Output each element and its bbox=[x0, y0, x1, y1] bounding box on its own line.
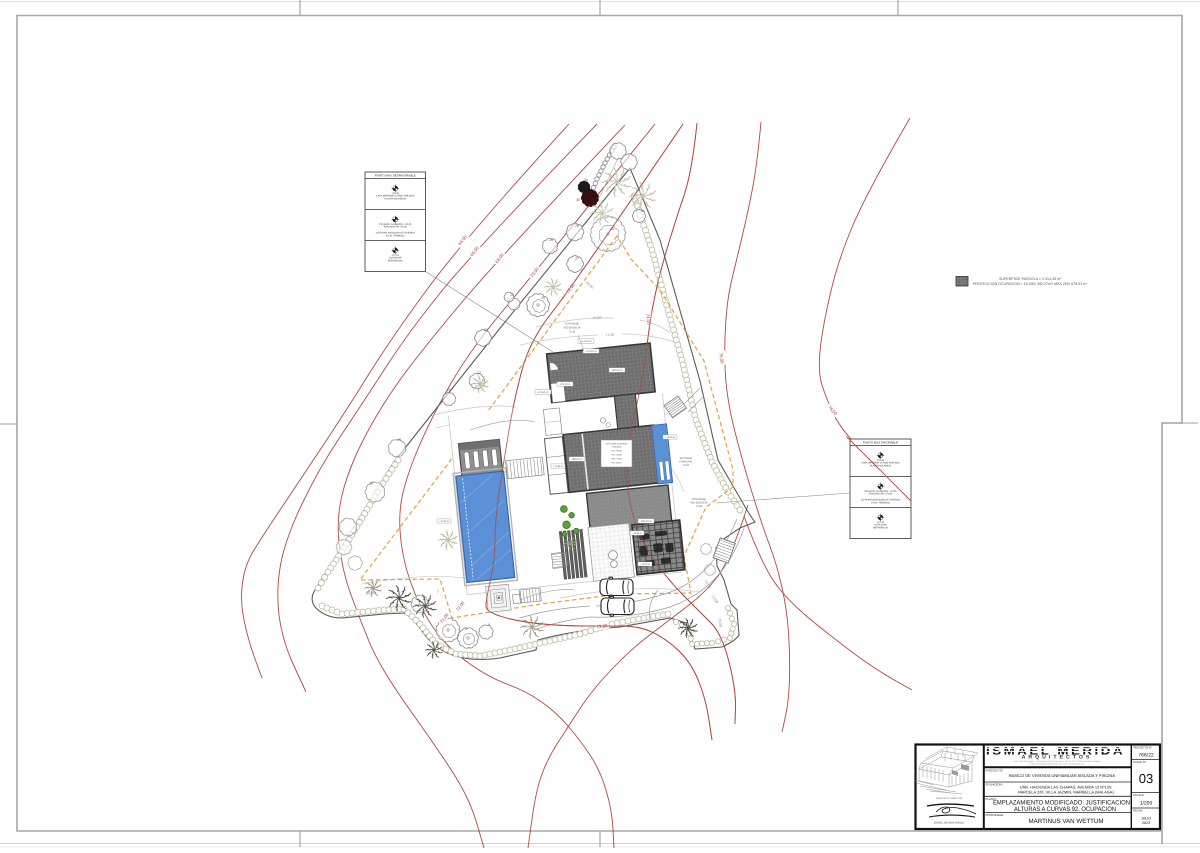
svg-text:ARQUITECTO DIRECTOR: ARQUITECTO DIRECTOR bbox=[936, 797, 963, 800]
svg-text:+80,00 m: +80,00 m bbox=[572, 458, 583, 461]
svg-text:SITUACION:: SITUACION: bbox=[986, 783, 1003, 787]
svg-text:ARQUITECTOS: ARQUITECTOS bbox=[1022, 755, 1093, 761]
svg-text:ESCALA:: ESCALA: bbox=[1133, 794, 1145, 797]
svg-text:CARA INFERIOR ULTIMO FORJADO: CARA INFERIOR ULTIMO FORJADO bbox=[376, 195, 415, 198]
svg-text:24: 24 bbox=[510, 293, 514, 297]
svg-text:PROYECCION OCUPACION = 16,94%: PROYECCION OCUPACION = 16,94% 392,27m²/ … bbox=[973, 282, 1088, 286]
svg-text:33: 33 bbox=[576, 198, 580, 202]
svg-text:14: 14 bbox=[369, 481, 373, 485]
svg-text:766/22: 766/22 bbox=[1138, 753, 1154, 759]
svg-text:EN EL TERRENO: EN EL TERRENO bbox=[871, 501, 890, 504]
svg-text:+73,06 m: +73,06 m bbox=[439, 520, 449, 523]
svg-text:P.A.: 76,50: P.A.: 76,50 bbox=[611, 454, 622, 457]
svg-text:3: 3 bbox=[488, 623, 490, 627]
svg-text:COTA BASE: COTA BASE bbox=[389, 257, 402, 260]
svg-text:22: 22 bbox=[477, 371, 481, 375]
svg-text:+79,30: +79,30 bbox=[877, 459, 885, 462]
svg-text:+76,50 m: +76,50 m bbox=[560, 383, 571, 386]
svg-text:PLANTA SOLARIUM: PLANTA SOLARIUM bbox=[870, 465, 891, 468]
svg-text:CARA INFERIOR ULTIMO FORJADO: CARA INFERIOR ULTIMO FORJADO bbox=[861, 462, 900, 465]
svg-text:72,10: 72,10 bbox=[569, 331, 576, 334]
svg-text:P.G.: 80,40: P.G.: 80,40 bbox=[611, 450, 622, 453]
svg-text:COTA BASE: COTA BASE bbox=[565, 323, 580, 326]
svg-text:+75,86 m: +75,86 m bbox=[632, 532, 642, 535]
svg-text:JULIO: JULIO bbox=[1141, 817, 1151, 821]
svg-text:15: 15 bbox=[397, 438, 401, 442]
svg-text:MARTINUS VAN WETTUM: MARTINUS VAN WETTUM bbox=[1028, 818, 1103, 825]
svg-text:PROYECTO Nº: PROYECTO Nº bbox=[1133, 747, 1152, 750]
svg-text:+71,65 m: +71,65 m bbox=[538, 391, 549, 394]
svg-text:FORJADO PB: +72,85: FORJADO PB: +72,85 bbox=[384, 226, 408, 229]
svg-text:+75,86 m: +75,86 m bbox=[553, 465, 563, 468]
svg-text:03: 03 bbox=[1139, 771, 1153, 786]
svg-text:COTA IMPLANTACION: COTA IMPLANTACION bbox=[606, 443, 628, 446]
svg-text:COTA BASE: COTA BASE bbox=[874, 524, 887, 527]
svg-text:A.Principe de Vergara - Urb.Ma: A.Principe de Vergara - Urb.Marbella Rea… bbox=[1014, 760, 1102, 763]
svg-text:e-mail: estudio@ismaelmerida.c: e-mail: estudio@ismaelmerida.com www.ism… bbox=[1030, 763, 1085, 766]
svg-text:PARCELA 226, VILLA JAZMIN, MAR: PARCELA 226, VILLA JAZMIN, MARBELLA (MAL… bbox=[1018, 789, 1114, 794]
svg-text:21: 21 bbox=[447, 388, 451, 392]
svg-text:PB (NIVEL ACABADO): +73,00: PB (NIVEL ACABADO): +73,00 bbox=[379, 223, 412, 226]
svg-text:7: 7 bbox=[437, 590, 439, 594]
svg-text:+72,10: +72,10 bbox=[877, 521, 885, 524]
svg-text:FORJADO PB: +72,85: FORJADO PB: +72,85 bbox=[869, 493, 893, 496]
svg-text:P.B.: 73,00: P.B.: 73,00 bbox=[611, 458, 622, 461]
svg-text:72,85: 72,85 bbox=[696, 505, 703, 508]
svg-text:PLANTA SOLARIUM: PLANTA SOLARIUM bbox=[385, 198, 406, 201]
svg-text:REFERENCIA: REFERENCIA bbox=[873, 527, 888, 530]
svg-text:SUPERFICIE PARCELA = 2.314,45: SUPERFICIE PARCELA = 2.314,45 m² bbox=[999, 277, 1062, 281]
svg-text:EN EL TERRENO: EN EL TERRENO bbox=[386, 234, 405, 237]
svg-text:+80,00 m: +80,00 m bbox=[641, 520, 652, 523]
svg-text:P.S.: 69,70: P.S.: 69,70 bbox=[611, 462, 622, 465]
svg-text:28: 28 bbox=[575, 224, 579, 228]
svg-text:PLANO Nº:: PLANO Nº: bbox=[1133, 761, 1147, 764]
svg-text:2023: 2023 bbox=[1142, 821, 1150, 825]
svg-text:34: 34 bbox=[584, 178, 588, 182]
svg-text:BASICO DE VIVIENDA UNIFAMILIAR: BASICO DE VIVIENDA UNIFAMILIAR AISLADA Y… bbox=[1009, 773, 1115, 778]
svg-text:27: 27 bbox=[575, 257, 579, 261]
svg-text:PUNTO MAS FAVORABLE: PUNTO MAS FAVORABLE bbox=[863, 441, 898, 445]
svg-text:72,00: 72,00 bbox=[683, 464, 690, 467]
svg-text:VIVIENDA: VIVIENDA bbox=[612, 446, 622, 449]
svg-text:+73,00 m: +73,00 m bbox=[640, 563, 650, 566]
svg-text:23: 23 bbox=[484, 328, 488, 332]
svg-text:PROPIEDAD:: PROPIEDAD: bbox=[986, 813, 1005, 817]
svg-text:2: 2 bbox=[465, 627, 467, 631]
svg-text:71,00: 71,00 bbox=[605, 333, 614, 338]
svg-text:29: 29 bbox=[549, 238, 553, 242]
svg-text:70,00: 70,00 bbox=[592, 316, 601, 321]
svg-text:+79,30: +79,30 bbox=[392, 192, 400, 195]
svg-text:31: 31 bbox=[641, 209, 645, 213]
svg-text:COTA IMPLANTACIÓN DE VIVIENDA: COTA IMPLANTACIÓN DE VIVIENDA bbox=[861, 499, 900, 502]
svg-text:+80,00 m: +80,00 m bbox=[612, 369, 623, 372]
svg-text:ISMAEL MERIDA GOMEZ: ISMAEL MERIDA GOMEZ bbox=[934, 822, 965, 825]
svg-text:1/200: 1/200 bbox=[1140, 801, 1153, 807]
svg-text:COTA IMPLANTACIÓN DE VIVIENDA: COTA IMPLANTACIÓN DE VIVIENDA bbox=[376, 232, 415, 235]
svg-text:+73,00 m: +73,00 m bbox=[665, 436, 675, 439]
svg-text:FECHA:: FECHA: bbox=[1133, 810, 1143, 813]
svg-text:+72,10: +72,10 bbox=[392, 254, 400, 257]
svg-text:+71,65 m: +71,65 m bbox=[581, 340, 592, 343]
svg-text:PUNTO MAS DESFAVORABLE: PUNTO MAS DESFAVORABLE bbox=[375, 174, 416, 178]
svg-text:REFERENCIA: REFERENCIA bbox=[564, 327, 581, 330]
svg-text:ALTURAS A CURVAS 92. OCUPACION: ALTURAS A CURVAS 92. OCUPACION bbox=[1014, 806, 1116, 813]
svg-text:25: 25 bbox=[541, 296, 545, 300]
svg-text:PROYECTO:: PROYECTO: bbox=[986, 769, 1004, 773]
svg-text:PB (NIVEL ACABADO): +73,00: PB (NIVEL ACABADO): +73,00 bbox=[865, 490, 898, 493]
svg-text:+76,50 m: +76,50 m bbox=[586, 350, 597, 353]
svg-text:REFERENCIA: REFERENCIA bbox=[388, 260, 403, 263]
